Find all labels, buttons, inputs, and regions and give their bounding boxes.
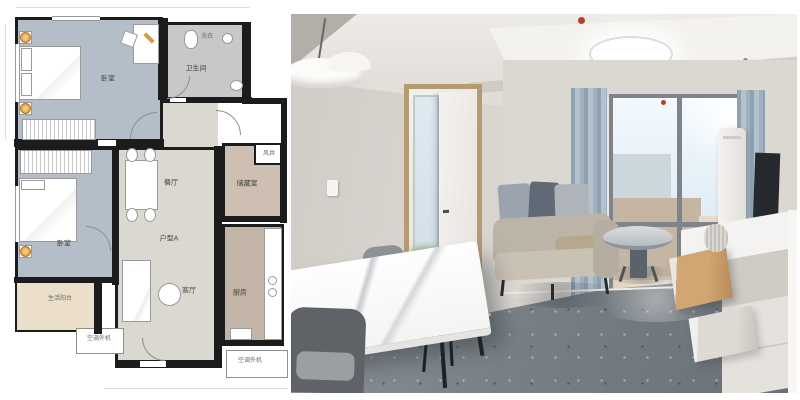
wall-segment bbox=[222, 216, 282, 222]
label-bedroom-2: 卧室 bbox=[57, 241, 71, 248]
label-unit-tag: 户型A bbox=[160, 236, 179, 243]
sink bbox=[230, 80, 243, 91]
door-arc bbox=[216, 110, 241, 135]
wall-segment bbox=[14, 139, 164, 147]
wall-segment bbox=[242, 22, 251, 104]
door-handle-icon bbox=[443, 210, 449, 213]
sofa bbox=[493, 182, 619, 304]
light-switch[interactable] bbox=[327, 180, 338, 196]
wall-segment bbox=[112, 147, 119, 285]
stove-burner-icon bbox=[268, 288, 277, 297]
chair bbox=[126, 208, 138, 222]
pillow bbox=[21, 48, 32, 71]
desk bbox=[133, 24, 159, 64]
label-bathroom: 卫生间 bbox=[186, 66, 207, 73]
label-dining: 餐厅 bbox=[164, 180, 178, 187]
label-air-shaft: 风井 bbox=[263, 151, 275, 157]
sofa-leg bbox=[551, 284, 554, 300]
dining-chair-foreground bbox=[291, 307, 366, 393]
wall-segment bbox=[115, 360, 218, 368]
woven-pouf bbox=[704, 224, 728, 252]
smoke-detector-icon bbox=[578, 17, 585, 24]
label-ac-left: 空调外机 bbox=[87, 336, 111, 342]
coffee-table-foot bbox=[619, 266, 627, 282]
ac-vent bbox=[723, 136, 741, 139]
dining-table bbox=[125, 160, 158, 210]
interior-photo[interactable] bbox=[291, 14, 797, 393]
wall-segment bbox=[14, 277, 116, 283]
label-ac-right: 空调外机 bbox=[238, 358, 262, 364]
window-mark bbox=[52, 16, 100, 21]
door-gap bbox=[140, 361, 166, 367]
chair bbox=[126, 148, 138, 162]
room-balcony bbox=[15, 280, 99, 332]
kitchen-sink bbox=[230, 328, 252, 340]
pillow bbox=[21, 180, 45, 190]
wall-segment bbox=[222, 340, 284, 346]
lamp-icon bbox=[20, 32, 31, 43]
label-living: 客厅 bbox=[182, 288, 196, 295]
label-bedroom-1: 卧室 bbox=[101, 76, 115, 83]
floorplan-image[interactable]: 卧室 卫生间 洗衣 餐厅 户型A 客厅 厨房 储藏室 风井 卧室 生活阳台 空调… bbox=[0, 0, 291, 400]
wardrobe bbox=[20, 150, 92, 174]
lamp-icon bbox=[20, 246, 31, 257]
washing-machine-icon bbox=[222, 33, 233, 44]
dimension-line-bottom bbox=[104, 388, 288, 389]
sideboard-edge bbox=[788, 210, 797, 393]
wall-segment bbox=[281, 102, 287, 148]
wardrobe bbox=[22, 119, 96, 140]
stove-burner-icon bbox=[268, 276, 277, 285]
lamp-icon bbox=[20, 103, 31, 114]
coffee-table bbox=[603, 226, 673, 284]
alarm-dot-icon bbox=[661, 100, 666, 105]
pillow bbox=[21, 73, 32, 96]
wall-segment bbox=[214, 146, 222, 368]
chair bbox=[144, 148, 156, 162]
coffee-table bbox=[158, 283, 181, 306]
toilet bbox=[184, 30, 198, 49]
label-balcony: 生活阳台 bbox=[48, 296, 72, 302]
label-storage: 储藏室 bbox=[237, 181, 258, 188]
dimension-line-top bbox=[16, 7, 250, 8]
coffee-table-top bbox=[603, 226, 673, 250]
chair bbox=[144, 208, 156, 222]
box-ac-unit-right bbox=[226, 350, 288, 378]
chair-cushion bbox=[296, 351, 355, 381]
sofa bbox=[122, 260, 151, 322]
room-hallway bbox=[163, 97, 218, 153]
dimension-line-left bbox=[5, 24, 6, 140]
coffee-table-foot bbox=[651, 266, 659, 282]
label-kitchen: 厨房 bbox=[233, 290, 247, 297]
door-gap bbox=[98, 140, 116, 146]
sofa-leg bbox=[500, 280, 505, 296]
wall-segment bbox=[280, 143, 287, 223]
label-laundry: 洗衣 bbox=[201, 34, 213, 40]
door-gap bbox=[170, 98, 186, 102]
listing-image: 卧室 卫生间 洗衣 餐厅 户型A 客厅 厨房 储藏室 风井 卧室 生活阳台 空调… bbox=[0, 0, 800, 400]
wall-segment bbox=[94, 280, 102, 334]
